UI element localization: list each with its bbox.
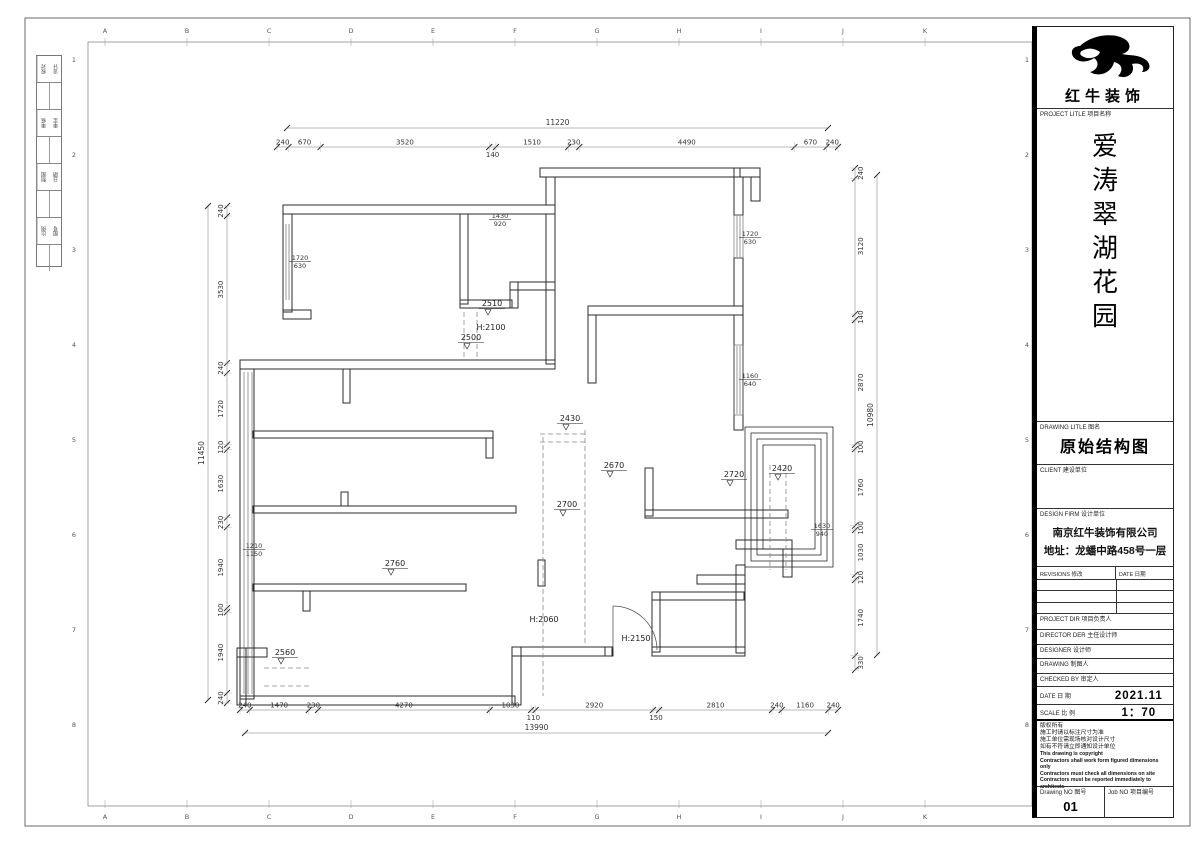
level-label: 2670 — [604, 461, 624, 470]
grid-letter: A — [103, 27, 108, 35]
note-line: Contractors shall work form figured dime… — [1040, 758, 1170, 771]
dim-label: 100 — [857, 521, 865, 534]
dim-label: 1740 — [857, 609, 865, 627]
height-label: H:2150 — [621, 634, 650, 643]
level-symbol-icon — [388, 570, 394, 576]
window-size-top: 1430 — [492, 212, 509, 220]
dim-label: 4490 — [678, 139, 696, 147]
drawing-sheet: AABBCCDDEEFFGGHHIIJJKK112233445566778824… — [0, 0, 1200, 844]
level-symbol-icon — [485, 310, 491, 316]
dim-label: 670 — [804, 139, 817, 147]
grid-number: 1 — [72, 56, 76, 64]
note-line: 施工时请以标注尺寸为准 — [1040, 730, 1170, 737]
grid-number: 2 — [1025, 151, 1029, 159]
dim-label: 140 — [857, 310, 865, 323]
date-row: DATE 日 期 2021.11 — [1037, 686, 1173, 704]
grid-number: 8 — [1025, 721, 1029, 729]
job-number-cell: Job NO 项目编号 — [1105, 787, 1173, 817]
dim-label: 120 — [857, 571, 865, 584]
level-symbol-icon — [563, 425, 569, 431]
grid-letter: I — [760, 27, 762, 35]
grid-letter: G — [594, 813, 599, 821]
dim-label: 140 — [486, 151, 499, 159]
dim-label: 230 — [217, 516, 225, 529]
signoff-label: 图号 — [50, 218, 62, 244]
grid-number: 2 — [72, 151, 76, 159]
signoff-blank — [37, 245, 61, 271]
dim-label: 2810 — [707, 702, 725, 710]
company-logo: 红牛装饰 — [1037, 27, 1173, 108]
drawing-by-label: DRAWING 制图人 — [1037, 659, 1091, 669]
project-dir-label: PROJECT DIR 项目负责人 — [1037, 614, 1115, 624]
project-name-char: 花 — [1092, 266, 1118, 300]
dim-label: 4270 — [395, 702, 413, 710]
level-symbol-icon — [278, 659, 284, 665]
grid-number: 3 — [1025, 246, 1029, 254]
grid-letter: D — [348, 27, 353, 35]
grid-letter: J — [841, 27, 844, 35]
generated-annotations: AABBCCDDEEFFGGHHIIJJKK112233445566778824… — [72, 27, 1029, 821]
grid-letter: E — [431, 813, 435, 821]
dim-label: 1760 — [857, 479, 865, 497]
dim-label: 3530 — [217, 281, 225, 299]
level-symbol-icon — [775, 475, 781, 481]
window-size-top: 1160 — [742, 372, 759, 380]
bay-window — [745, 427, 833, 567]
bull-logo-icon — [1050, 34, 1160, 84]
grid-letter: D — [348, 813, 353, 821]
director-label: DIRECTOR DER 主任设计师 — [1037, 630, 1120, 640]
level-symbol-icon — [727, 481, 733, 487]
sheet-frame — [25, 18, 1190, 826]
window-size-top: 1720 — [292, 254, 309, 262]
level-symbol-icon — [464, 344, 470, 350]
window-size-top: 1720 — [742, 230, 759, 238]
signoff-blank — [37, 137, 61, 164]
dim-label: 100 — [217, 603, 225, 616]
dim-label: 670 — [298, 139, 311, 147]
grid-number: 5 — [1025, 436, 1029, 444]
grid-letter: C — [267, 27, 272, 35]
dim-label: 1160 — [796, 702, 814, 710]
revision-row — [1037, 579, 1173, 590]
signoff-cell: 校对 设计 — [37, 56, 61, 83]
dim-label: 150 — [649, 714, 662, 722]
revision-row — [1037, 590, 1173, 601]
date-label: DATE 日 期 — [1040, 691, 1108, 700]
overall-dim-label: 10980 — [866, 403, 875, 427]
drawing-no-label: Drawing NO 图号 — [1037, 787, 1104, 797]
signoff-label: 比例 — [37, 218, 50, 244]
drawing-number-cell: Drawing NO 图号 01 — [1037, 787, 1105, 817]
overall-dim-label: 11220 — [546, 118, 570, 127]
grid-letter: F — [513, 27, 517, 35]
dim-label: 240 — [770, 702, 783, 710]
client-section: CLIENT 建设单位 — [1037, 464, 1173, 508]
grid-letter: B — [185, 813, 189, 821]
grid-letter: B — [185, 27, 189, 35]
grid-letter: C — [267, 813, 272, 821]
checked-by-label: CHECKED BY 审定人 — [1037, 674, 1102, 684]
dim-label: 1470 — [270, 702, 288, 710]
company-name: 红牛装饰 — [1065, 85, 1145, 106]
level-label: 2720 — [724, 470, 744, 479]
grid-number: 7 — [1025, 626, 1029, 634]
dim-label: 110 — [527, 714, 540, 722]
grid-letter: F — [513, 813, 517, 821]
dim-label: 240 — [217, 691, 225, 704]
revisions-header: REVISIONS 修改 DATE 日期 — [1037, 566, 1173, 579]
dim-label: 230 — [307, 702, 320, 710]
grid-letter: E — [431, 27, 435, 35]
level-symbol-icon — [607, 472, 613, 478]
signoff-label: 设计 — [50, 56, 62, 82]
floorplan-canvas: AABBCCDDEEFFGGHHIIJJKK112233445566778824… — [0, 0, 1200, 844]
project-name-char: 涛 — [1092, 164, 1118, 198]
level-label: 2700 — [557, 500, 577, 509]
project-name-char: 湖 — [1092, 232, 1118, 266]
window-size-bottom: 1150 — [246, 550, 263, 558]
note-line: 版权所有 — [1040, 723, 1170, 730]
window-size-top: 1210 — [246, 542, 263, 550]
dim-label: 120 — [217, 441, 225, 454]
overall-dim-label: 13990 — [525, 723, 549, 732]
signoff-cell: 制图 日期 — [37, 164, 61, 191]
dim-label: 1630 — [217, 475, 225, 493]
dim-label: 240 — [857, 167, 865, 180]
revision-date-label: DATE 日期 — [1116, 567, 1149, 579]
grid-number: 5 — [72, 436, 76, 444]
revision-row — [1037, 602, 1173, 613]
dim-label: 240 — [276, 139, 289, 147]
signoff-blank — [37, 83, 61, 110]
level-label: 2760 — [385, 559, 405, 568]
signoff-label: 制图 — [37, 164, 50, 190]
drawing-title: 原始结构图 — [1037, 433, 1173, 464]
title-block: 红牛装饰 PROJECT LITLE 项目名称 爱 涛 翠 湖 花 园 DRAW… — [1032, 26, 1174, 818]
grid-letter: H — [677, 27, 682, 35]
dim-label: 1940 — [217, 559, 225, 577]
dim-label: 240 — [217, 361, 225, 374]
dim-label: 1030 — [502, 702, 520, 710]
dim-label: 3120 — [857, 237, 865, 255]
dim-label: 230 — [567, 139, 580, 147]
scale-value: 1：70 — [1108, 704, 1170, 720]
height-label: H:2060 — [529, 615, 558, 624]
window-size-bottom: 940 — [816, 530, 828, 538]
grid-number: 6 — [72, 531, 76, 539]
grid-letter: K — [923, 813, 928, 821]
grid-letter: H — [677, 813, 682, 821]
dim-label: 240 — [826, 702, 839, 710]
signoff-cell: 审核 审定 — [37, 110, 61, 137]
design-firm-section: DESIGN FIRM 设计单位 南京红牛装饰有限公司 地址：龙蟠中路458号一… — [1037, 508, 1173, 566]
drawing-no-value: 01 — [1037, 799, 1104, 814]
dim-label: 1720 — [217, 400, 225, 418]
signoff-label: 审核 — [37, 110, 50, 136]
grid-number: 1 — [1025, 56, 1029, 64]
dim-label: 240 — [217, 204, 225, 217]
signoff-label: 校对 — [37, 56, 50, 82]
window-size-top: 1630 — [814, 522, 831, 530]
revisions-rows — [1037, 579, 1173, 613]
date-value: 2021.11 — [1108, 690, 1170, 702]
dim-label: 1510 — [523, 139, 541, 147]
overall-dim-label: 11450 — [197, 441, 206, 465]
level-label: 2500 — [461, 333, 481, 342]
note-line: 如有不符请立即通知设计单位 — [1040, 744, 1170, 751]
dim-label: 240 — [238, 702, 251, 710]
window-size-bottom: 920 — [494, 220, 506, 228]
signoff-strip: 校对 设计 审核 审定 制图 日期 比例 图号 — [36, 55, 62, 267]
copyright-notes: 版权所有 施工时请以标注尺寸为准 施工单位需现场核对设计尺寸 如有不符请立即通知… — [1037, 719, 1173, 786]
signoff-label: 审定 — [50, 110, 62, 136]
signoff-blank — [37, 191, 61, 218]
grid-number: 8 — [72, 721, 76, 729]
level-label: 2420 — [772, 464, 792, 473]
dim-label: 3520 — [396, 139, 414, 147]
walls — [237, 168, 792, 705]
designer-label: DESIGNER 设计师 — [1037, 645, 1094, 655]
dim-label: 100 — [857, 440, 865, 453]
project-name-char: 翠 — [1092, 198, 1118, 232]
job-no-label: Job NO 项目编号 — [1105, 787, 1173, 797]
grid-letter: I — [760, 813, 762, 821]
drawing-number-row: Drawing NO 图号 01 Job NO 项目编号 — [1037, 786, 1173, 817]
grid-number: 3 — [72, 246, 76, 254]
design-firm-address: 地址：龙蟠中路458号一层 — [1037, 543, 1173, 558]
grid-number: 6 — [1025, 531, 1029, 539]
grid-letter: A — [103, 813, 108, 821]
dim-label: 2870 — [857, 374, 865, 392]
grid-letter: J — [841, 813, 844, 821]
design-firm-label: DESIGN FIRM 设计单位 — [1037, 509, 1173, 519]
height-label: H:2100 — [476, 323, 505, 332]
project-name-char: 爱 — [1092, 130, 1118, 164]
dim-label: 330 — [857, 656, 865, 669]
grid-number: 4 — [72, 341, 76, 349]
window-size-bottom: 640 — [744, 380, 756, 388]
drawing-title-label: DRAWING LITLE 图名 — [1037, 421, 1173, 433]
project-name-char: 园 — [1092, 300, 1118, 334]
dim-label: 2920 — [585, 702, 603, 710]
note-line: 施工单位需现场核对设计尺寸 — [1040, 737, 1170, 744]
scale-label: SCALE 比 例 — [1040, 708, 1108, 717]
design-firm-name: 南京红牛装饰有限公司 — [1037, 525, 1173, 540]
level-label: 2510 — [482, 299, 502, 308]
grid-letter: K — [923, 27, 928, 35]
level-label: 2560 — [275, 648, 295, 657]
grid-number: 7 — [72, 626, 76, 634]
scale-row: SCALE 比 例 1：70 — [1037, 704, 1173, 719]
window-size-bottom: 630 — [294, 262, 306, 270]
project-title-label: PROJECT LITLE 项目名称 — [1037, 108, 1173, 120]
dim-label: 1940 — [217, 644, 225, 662]
signoff-label: 日期 — [50, 164, 62, 190]
entry-door-arc — [613, 606, 657, 650]
level-label: 2430 — [560, 414, 580, 423]
window-size-bottom: 630 — [744, 238, 756, 246]
grid-number: 4 — [1025, 341, 1029, 349]
dashed-opening-lines — [264, 312, 786, 696]
grid-letter: G — [594, 27, 599, 35]
revisions-label: REVISIONS 修改 — [1037, 567, 1116, 579]
dim-label: 1030 — [857, 544, 865, 562]
signoff-cell: 比例 图号 — [37, 218, 61, 245]
project-name: 爱 涛 翠 湖 花 园 — [1037, 120, 1173, 421]
level-symbol-icon — [560, 511, 566, 517]
client-label: CLIENT 建设单位 — [1037, 465, 1173, 475]
dim-label: 240 — [826, 139, 839, 147]
